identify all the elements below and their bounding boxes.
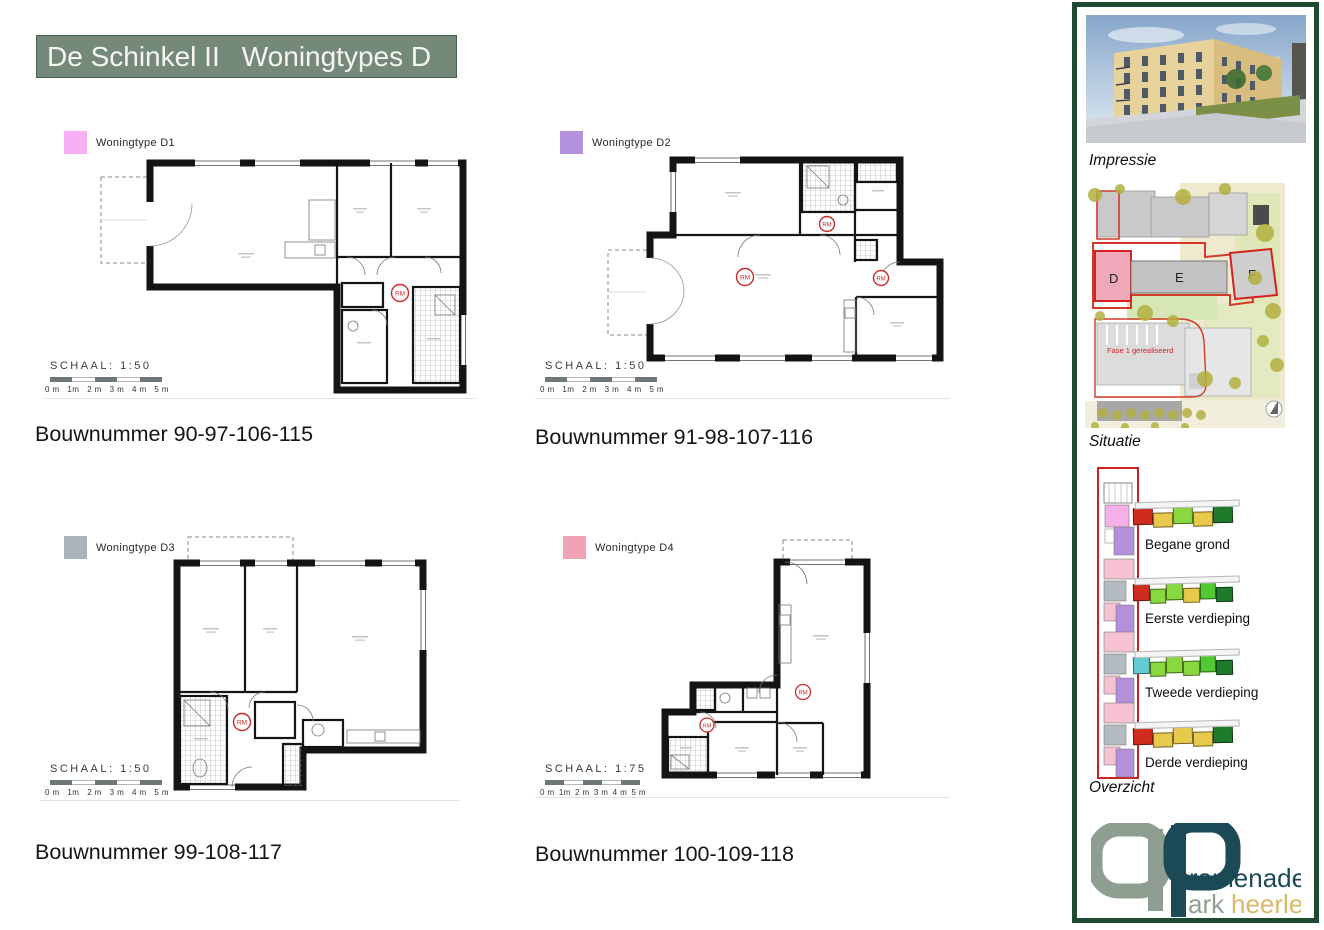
schaal-d4: SCHAAL: 1:75 0 m1m2 m3 m4 m5 m [545,763,685,797]
scalebar-d3 [50,780,162,785]
floor-strip-4 [1133,724,1234,753]
impressie-label: Impressie [1089,152,1156,170]
floor-unit-block [1183,588,1200,603]
floor-unit-block [1183,661,1200,676]
svg-text:RM: RM [703,724,712,730]
legend-swatch-d1 [64,131,87,154]
floor-unit-block [1199,582,1216,599]
bouwnummer-d3: Bouwnummer 99-108-117 [35,840,282,865]
rm-marker: RM [392,285,409,302]
scalebar-d1 [50,377,162,382]
floor-unit-block [1173,727,1193,745]
floorplan-d1: RM [95,150,475,395]
floor-unit-block [1193,731,1213,747]
svg-text:RM: RM [395,291,405,298]
floor-unit-block [1216,587,1233,602]
divider [40,800,460,801]
legend-label-d2: Woningtype D2 [592,137,671,149]
floor-unit-block [1193,511,1213,527]
floor-unit-block [1173,507,1193,525]
divider [45,398,475,399]
overzicht-label: Overzicht [1089,779,1154,797]
floor-unit-block [1213,726,1233,744]
scalebar-d2 [545,377,657,382]
floor-strip-3 [1133,653,1234,682]
schaal-label-d3: SCHAAL: 1:50 [50,763,190,775]
floor-unit-block [1153,512,1173,528]
floor-unit-block [1133,657,1150,674]
promenade-park-logo: romenade ark heerlen [1091,823,1301,919]
floorplan-d2: RM RM RM [600,150,945,395]
floor-strip-1 [1133,504,1234,533]
divider [535,398,950,399]
svg-text:D: D [1109,271,1118,286]
scalebar-d4 [545,780,640,785]
impressie-image [1086,15,1306,143]
svg-text:RM: RM [740,275,750,282]
floor-unit-block [1150,588,1167,603]
scale-ticks-d4: 0 m1m2 m3 m4 m5 m [540,788,646,797]
schaal-label-d1: SCHAAL: 1:50 [50,360,190,372]
schaal-label-d2: SCHAAL: 1:50 [545,360,685,372]
svg-text:E: E [1175,270,1184,285]
bouwnummer-d2: Bouwnummer 91-98-107-116 [535,425,813,450]
svg-text:RM: RM [822,223,831,229]
bouwnummer-d1: Bouwnummer 90-97-106-115 [35,422,313,447]
floor-label-4: Derde verdieping [1145,755,1248,770]
scale-ticks-d3: 0 m1m2 m3 m4 m5 m [45,788,169,797]
legend-swatch-d2 [560,131,583,154]
svg-text:RM: RM [798,691,807,697]
schaal-d2: SCHAAL: 1:50 0 m1m2 m3 m4 m5 m [545,360,685,394]
fase1-label: Fase 1 gerealiseerd [1107,346,1173,355]
floor-label-2: Eerste verdieping [1145,611,1250,626]
svg-text:ark: ark [1188,889,1225,919]
svg-text:heerlen: heerlen [1231,889,1301,919]
title-left: De Schinkel II [47,41,220,73]
brochure-page: De Schinkel II Woningtypes D Woningtype … [0,0,1324,930]
floor-unit-block [1166,583,1183,600]
outer-walls-d2 [650,160,940,358]
divider [535,797,950,798]
schaal-d1: SCHAAL: 1:50 0 m1m2 m3 m4 m5 m [50,360,190,394]
floor-unit-block [1213,506,1233,524]
situatie-label: Situatie [1089,433,1141,451]
legend-d3: Woningtype D3 [64,536,175,559]
floor-unit-block [1216,660,1233,675]
page-title: De Schinkel II Woningtypes D [36,35,457,78]
scale-ticks-d1: 0 m1m2 m3 m4 m5 m [45,385,169,394]
svg-text:RM: RM [876,277,885,283]
schaal-d3: SCHAAL: 1:50 0 m1m2 m3 m4 m5 m [50,763,190,797]
floor-label-1: Begane grond [1145,537,1230,552]
situatie-map: D E F Fase 1 gerealiseerd [1085,183,1285,428]
rm-marker: RM [234,714,251,731]
title-right: Woningtypes D [242,41,431,73]
floor-unit-block [1133,584,1150,601]
floor-unit-block [1153,732,1173,748]
legend-label-d3: Woningtype D3 [96,542,175,554]
bouwnummer-d4: Bouwnummer 100-109-118 [535,842,794,867]
scale-ticks-d2: 0 m1m2 m3 m4 m5 m [540,385,664,394]
svg-text:RM: RM [237,720,247,727]
legend-label-d1: Woningtype D1 [96,137,175,149]
floor-label-3: Tweede verdieping [1145,685,1258,700]
floor-strip-2 [1133,580,1234,609]
floorplan-d3: RM [170,530,440,800]
floor-unit-block [1150,661,1167,676]
floorplan-d4: RM RM [655,535,880,785]
legend-swatch-d3 [64,536,87,559]
floor-unit-block [1133,728,1153,746]
legend-swatch-d4 [563,536,586,559]
floor-unit-block [1133,508,1153,526]
schaal-label-d4: SCHAAL: 1:75 [545,763,685,775]
balcony-d2 [608,250,649,335]
sidebar-panel: Impressie D E F [1072,2,1319,923]
compass-icon [1266,401,1282,417]
floor-unit-block [1166,656,1183,673]
floor-unit-block [1199,655,1216,672]
